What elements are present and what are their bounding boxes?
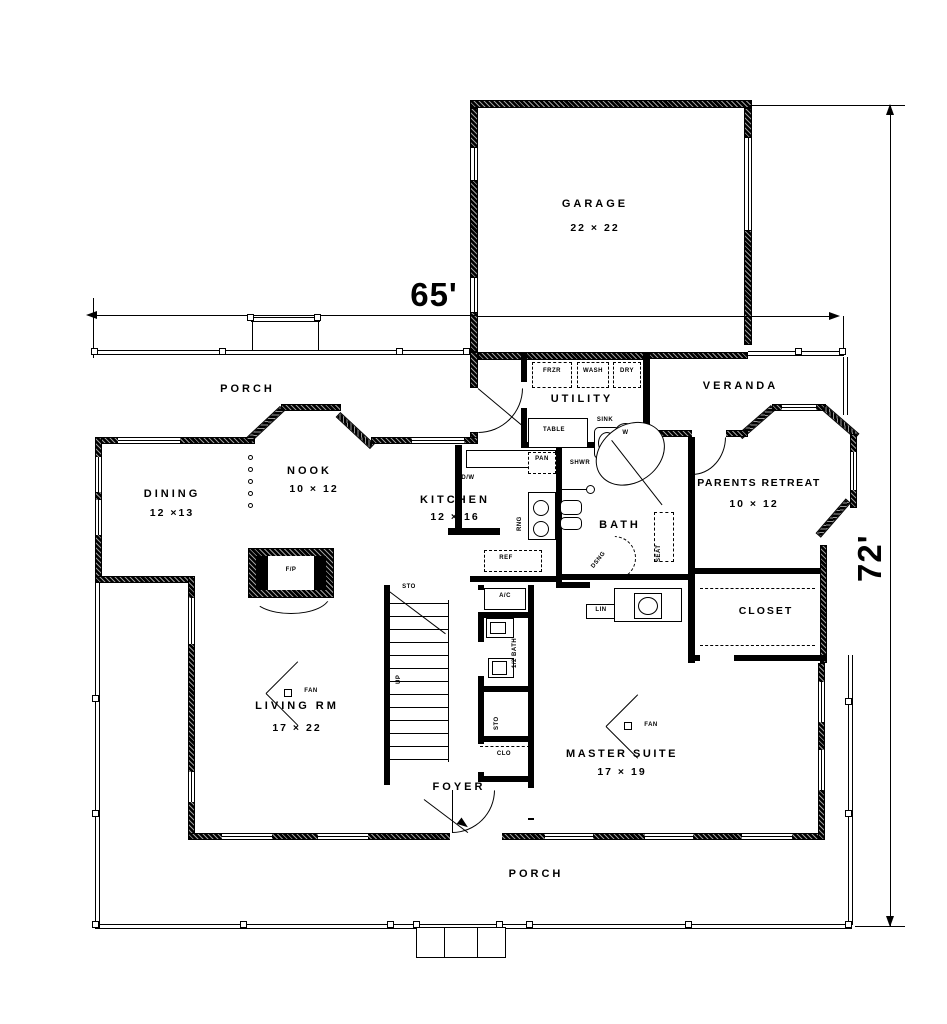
room-size-master-suite: 17 × 19 [563, 766, 681, 778]
fixture-label-fireplace: F/P [262, 567, 320, 573]
fixture-label-seat: SEAT [656, 520, 662, 562]
dim-65-left-arrow [86, 311, 97, 319]
wall-opening [478, 744, 484, 772]
plan-line [390, 707, 448, 708]
porch-post [845, 810, 852, 817]
plan-line [252, 320, 253, 351]
room-label-closet: CLOSET [730, 605, 802, 617]
plan-line [843, 316, 844, 352]
fixture-outline [490, 622, 506, 634]
plan-line [390, 746, 448, 747]
window [412, 437, 464, 444]
wall-segment [820, 545, 827, 663]
fixture-label-freezer: FRZR [532, 368, 572, 374]
porch-post [314, 314, 321, 321]
wall-segment [470, 100, 752, 108]
wall-opening [478, 642, 484, 676]
porch-post [685, 921, 692, 928]
window [95, 457, 102, 492]
fixture-label-half-bath: 1/2 BATH [512, 612, 518, 668]
fixture-outline [560, 517, 582, 530]
fixture-label-ac: A/C [484, 593, 526, 599]
plan-line [390, 655, 448, 656]
window [645, 833, 693, 840]
plan-line [390, 642, 448, 643]
wall-segment [470, 352, 478, 388]
wall-segment [478, 736, 534, 742]
fixture-label-sink: SINK [586, 417, 624, 423]
shelf-dashed-line [700, 588, 815, 589]
wall-segment [478, 686, 534, 692]
shelf-dashed-line [700, 645, 815, 646]
window [118, 437, 180, 444]
wall-segment [188, 833, 825, 840]
porch-post [91, 348, 98, 355]
fixture-label-shower: SHWR [558, 460, 602, 466]
window [188, 772, 195, 802]
porch-railing [848, 655, 853, 925]
opening-dot [248, 479, 253, 484]
room-label-bath: BATH [590, 519, 650, 531]
room-size-garage: 22 × 22 [545, 222, 645, 234]
wall-opening [692, 430, 726, 437]
porch-post [92, 810, 99, 817]
fixture-outline [560, 500, 582, 515]
room-size-living: 17 × 22 [252, 722, 342, 734]
door-swing-arc [692, 437, 726, 475]
room-label-parents-retreat: PARENTS RETREAT [694, 477, 824, 489]
fixture-label-fan-master: FAN [636, 722, 666, 728]
plan-line [390, 759, 448, 760]
fixture-label-table: TABLE [528, 427, 580, 433]
room-label-master-suite: MASTER SUITE [556, 748, 688, 760]
fixture-outline-dashed [613, 362, 641, 388]
room-label-veranda: VERANDA [693, 380, 788, 392]
window [95, 500, 102, 535]
wall-opening [700, 655, 734, 661]
fixture-outline [284, 689, 292, 697]
fixture-label-washer: WASH [577, 368, 609, 374]
porch-post [845, 921, 852, 928]
window [818, 750, 825, 790]
room-size-kitchen: 12 × 16 [413, 511, 497, 523]
wall-segment [384, 585, 390, 785]
eave-right-arrow [829, 312, 840, 320]
plan-line [748, 105, 905, 106]
room-label-utility: UTILITY [546, 393, 618, 405]
window [782, 404, 816, 411]
fixture-outline [528, 418, 588, 448]
plan-line [478, 316, 830, 317]
porch-post [240, 921, 247, 928]
wall-segment [448, 528, 500, 535]
wall-segment [336, 412, 375, 449]
plan-line [448, 600, 449, 762]
wall-segment [556, 582, 590, 588]
plan-line [606, 694, 639, 727]
porch-post [396, 348, 403, 355]
fixture-label-water-heater: W [614, 430, 637, 436]
fixture-label-fan-living: FAN [296, 688, 326, 694]
plan-line [444, 927, 445, 958]
wall-segment [314, 556, 326, 590]
fixture-label-coat-closet: CLO [482, 751, 526, 757]
wall-segment [95, 576, 195, 583]
window [318, 833, 368, 840]
plan-line [477, 927, 478, 958]
porch-post [845, 698, 852, 705]
fixture-outline [533, 500, 549, 516]
dimension-height-label: 72' [851, 490, 889, 582]
plan-line [390, 694, 448, 695]
porch-post [496, 921, 503, 928]
wall-segment [470, 576, 562, 582]
wall-opening [528, 788, 534, 818]
opening-dot [248, 467, 253, 472]
porch-post [92, 921, 99, 928]
opening-dot [248, 491, 253, 496]
plan-line [318, 320, 319, 351]
dimension-width-label: 65' [392, 276, 476, 314]
wall-segment [816, 498, 851, 537]
plan-line [93, 315, 477, 316]
plan-line [390, 720, 448, 721]
plan-line [890, 105, 891, 926]
wall-segment [744, 230, 752, 345]
fixture-outline-dashed [532, 362, 572, 388]
plan-line [266, 661, 299, 694]
window [742, 833, 792, 840]
dim-72-top-arrow [886, 104, 894, 115]
wall-segment [256, 556, 268, 590]
wall-segment [690, 568, 820, 574]
opening-dot [248, 455, 253, 460]
hearth-arc [252, 596, 330, 614]
door-swing-arc [478, 388, 523, 433]
wall-segment [470, 108, 478, 148]
porch-post [795, 348, 802, 355]
fixture-outline-dashed [577, 362, 609, 388]
fixture-label-refrigerator: REF [486, 555, 526, 561]
fixture-outline [624, 722, 632, 730]
fixture-outline [416, 927, 506, 958]
porch-post [463, 348, 470, 355]
porch-post [247, 314, 254, 321]
fixture-outline [586, 485, 595, 494]
opening-dot [248, 503, 253, 508]
porch-railing [95, 350, 470, 355]
wall-opening [450, 833, 502, 840]
window [818, 682, 825, 722]
porch-post [92, 695, 99, 702]
porch-railing [843, 357, 848, 415]
room-label-garage: GARAGE [545, 198, 645, 210]
window [744, 138, 752, 230]
fixture-label-range: RNG [517, 503, 523, 531]
window [222, 833, 272, 840]
porch-post [839, 348, 846, 355]
room-label-dining: DINING [133, 488, 211, 500]
room-label-porch-top: PORCH [205, 383, 290, 395]
floor-plan: 65' 72' GARAGE 22 × 22 PORCH VERANDA UTI… [0, 0, 947, 1024]
wall-segment [744, 108, 752, 138]
window [850, 452, 857, 490]
room-size-dining: 12 ×13 [133, 507, 211, 519]
fixture-outline [533, 521, 549, 537]
room-label-foyer: FOYER [427, 781, 491, 793]
fixture-label-storage-closet: STO [494, 700, 500, 730]
room-label-nook: NOOK [272, 465, 347, 477]
fixture-label-storage-stairs: STO [392, 584, 426, 590]
wall-segment [246, 406, 285, 443]
fixture-label-dressing: DSNG [584, 542, 613, 577]
fixture-label-stairs-up: UP [396, 662, 402, 684]
room-label-kitchen: KITCHEN [413, 494, 497, 506]
plan-line [388, 590, 446, 634]
fixture-outline [492, 661, 507, 675]
shelf-dashed-line [480, 746, 530, 747]
room-size-parents-retreat: 10 × 12 [694, 498, 814, 510]
wall-segment [281, 404, 341, 411]
window [470, 148, 478, 180]
wall-segment [528, 585, 534, 820]
dim-72-bottom-arrow [886, 916, 894, 927]
porch-post [387, 921, 394, 928]
plan-line [390, 733, 448, 734]
porch-railing [95, 583, 100, 928]
fixture-label-linen: LIN [586, 607, 616, 613]
plan-line [390, 616, 448, 617]
wall-segment [521, 352, 527, 382]
plan-line [855, 926, 905, 927]
fixture-outline [484, 588, 526, 610]
wall-segment [470, 180, 478, 278]
porch-post [413, 921, 420, 928]
porch-post [526, 921, 533, 928]
fixture-outline [638, 597, 658, 615]
window [545, 833, 593, 840]
porch-post [219, 348, 226, 355]
plan-line [390, 603, 448, 604]
room-label-living: LIVING RM [248, 700, 346, 712]
fixture-label-dishwasher: D/W [448, 475, 488, 481]
room-label-porch-bottom: PORCH [504, 868, 568, 880]
fixture-label-pantry: PAN [528, 456, 556, 462]
room-size-nook: 10 × 12 [275, 483, 353, 495]
wall-segment [648, 352, 748, 359]
wall-segment [470, 312, 478, 352]
wall-segment [478, 352, 648, 360]
porch-railing [251, 317, 320, 322]
fixture-outline-dashed [484, 550, 542, 572]
window [188, 598, 195, 644]
fixture-label-dryer: DRY [612, 368, 642, 374]
